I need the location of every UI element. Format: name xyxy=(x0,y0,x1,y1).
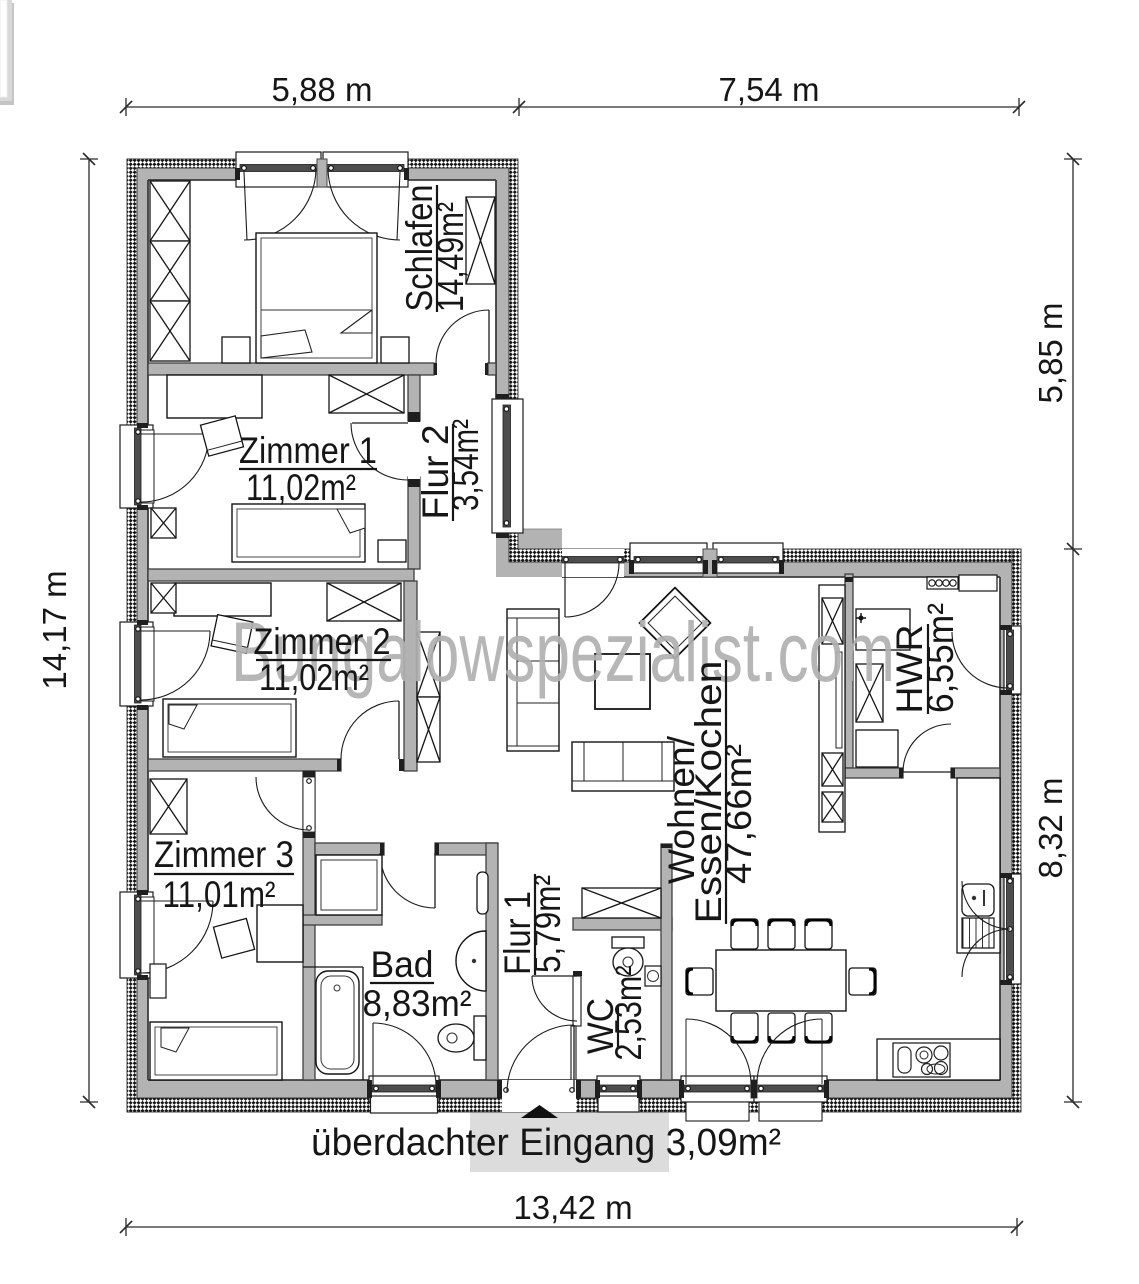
svg-text:Bad: Bad xyxy=(371,944,434,985)
svg-text:11,02m²: 11,02m² xyxy=(246,467,356,508)
svg-text:7,54 m: 7,54 m xyxy=(719,71,820,108)
svg-text:6,55m²: 6,55m² xyxy=(920,603,961,713)
svg-text:5,79m²: 5,79m² xyxy=(527,875,568,973)
svg-text:14,17 m: 14,17 m xyxy=(36,570,73,689)
svg-text:Zimmer 1: Zimmer 1 xyxy=(239,430,377,471)
svg-text:8,32 m: 8,32 m xyxy=(1032,778,1069,879)
svg-text:11,02m²: 11,02m² xyxy=(259,657,369,698)
svg-text:11,01m²: 11,01m² xyxy=(163,874,276,915)
svg-text:Zimmer 3: Zimmer 3 xyxy=(154,834,294,875)
svg-text:47,66m²: 47,66m² xyxy=(718,744,759,884)
svg-text:5,85 m: 5,85 m xyxy=(1032,303,1069,404)
svg-text:überdachter Eingang 3,09m²: überdachter Eingang 3,09m² xyxy=(311,1122,781,1164)
svg-text:13,42 m: 13,42 m xyxy=(513,1189,632,1226)
svg-text:3,54m²: 3,54m² xyxy=(445,419,486,511)
svg-text:5,88 m: 5,88 m xyxy=(272,71,373,108)
svg-text:8,83m²: 8,83m² xyxy=(363,983,472,1024)
svg-text:Zimmer 2: Zimmer 2 xyxy=(254,621,391,662)
svg-text:2,53m²: 2,53m² xyxy=(608,966,649,1061)
svg-text:14,49m²: 14,49m² xyxy=(430,202,471,312)
